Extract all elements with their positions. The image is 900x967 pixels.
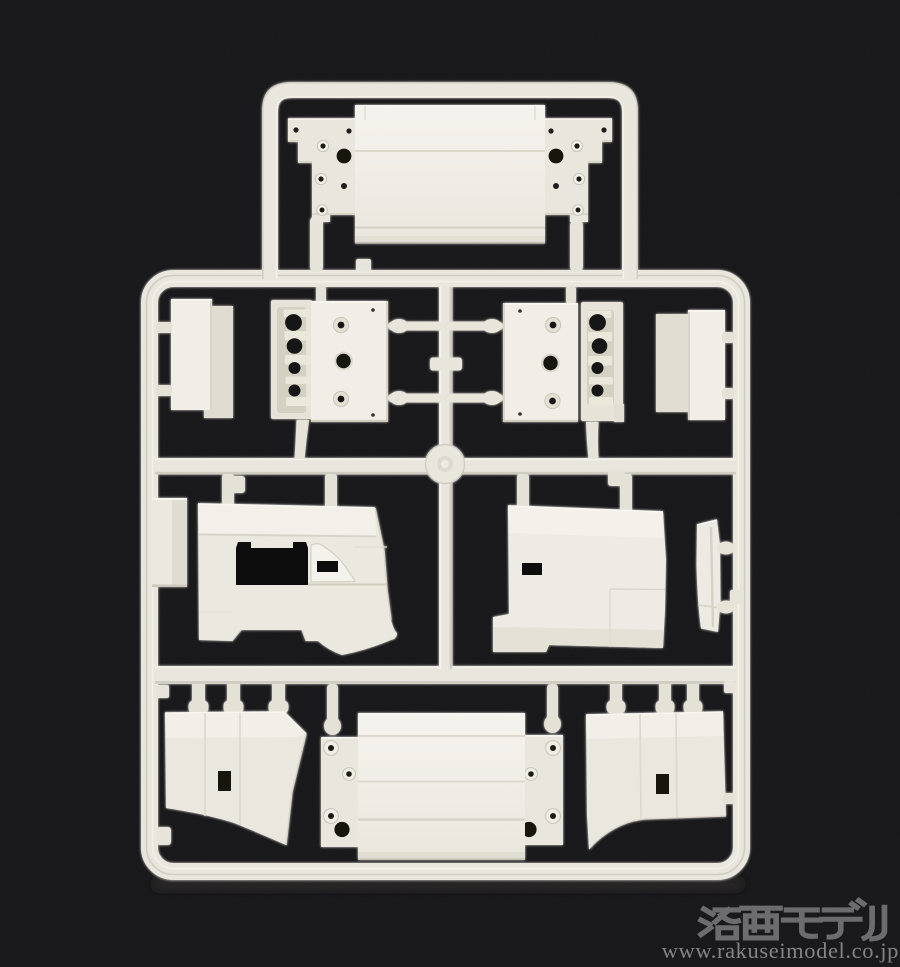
svg-text:www.rakuseimodel.co.jp: www.rakuseimodel.co.jp xyxy=(662,938,899,963)
